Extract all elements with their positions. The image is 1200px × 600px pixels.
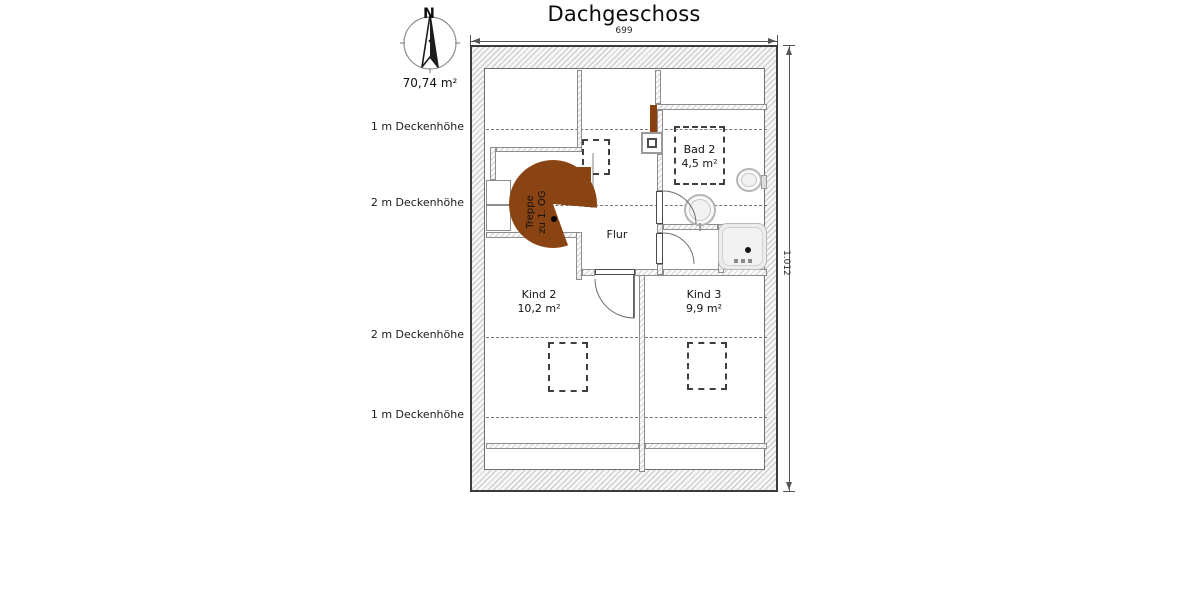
ceiling-height-label-3: 2 m Deckenhöhe [364, 328, 464, 341]
page-title: Dachgeschoss [470, 2, 778, 26]
arrow-up-icon [786, 47, 792, 55]
dimension-top-label: 699 [574, 26, 674, 36]
floor-plan-page: Dachgeschoss N 70,74 m² 1 m Deckenhöhe 2… [0, 0, 1200, 600]
ceiling-height-label-2: 2 m Deckenhöhe [364, 196, 464, 209]
door-arcs [472, 47, 780, 494]
room-label-bad2: Bad 2 4,5 m² [674, 143, 725, 172]
dimension-right-label: 1.012 [781, 250, 791, 276]
dimension-tick [783, 491, 795, 492]
ceiling-height-label-4: 1 m Deckenhöhe [364, 408, 464, 421]
room-label-kind3: Kind 3 9,9 m² [664, 288, 744, 317]
compass-north-label: N [423, 6, 435, 22]
total-area-label: 70,74 m² [394, 76, 466, 90]
dimension-top-line [470, 41, 778, 42]
ceiling-height-label-1: 1 m Deckenhöhe [364, 120, 464, 133]
floor-plan: Treppe zu 1. OG Flur Bad 2 4 [470, 45, 778, 492]
room-label-flur: Flur [582, 228, 652, 242]
arrow-left-icon [472, 38, 480, 44]
room-label-kind2: Kind 2 10,2 m² [499, 288, 579, 317]
arrow-right-icon [768, 38, 776, 44]
arrow-down-icon [786, 482, 792, 490]
dimension-tick [783, 45, 795, 46]
compass-icon: N [398, 4, 462, 74]
